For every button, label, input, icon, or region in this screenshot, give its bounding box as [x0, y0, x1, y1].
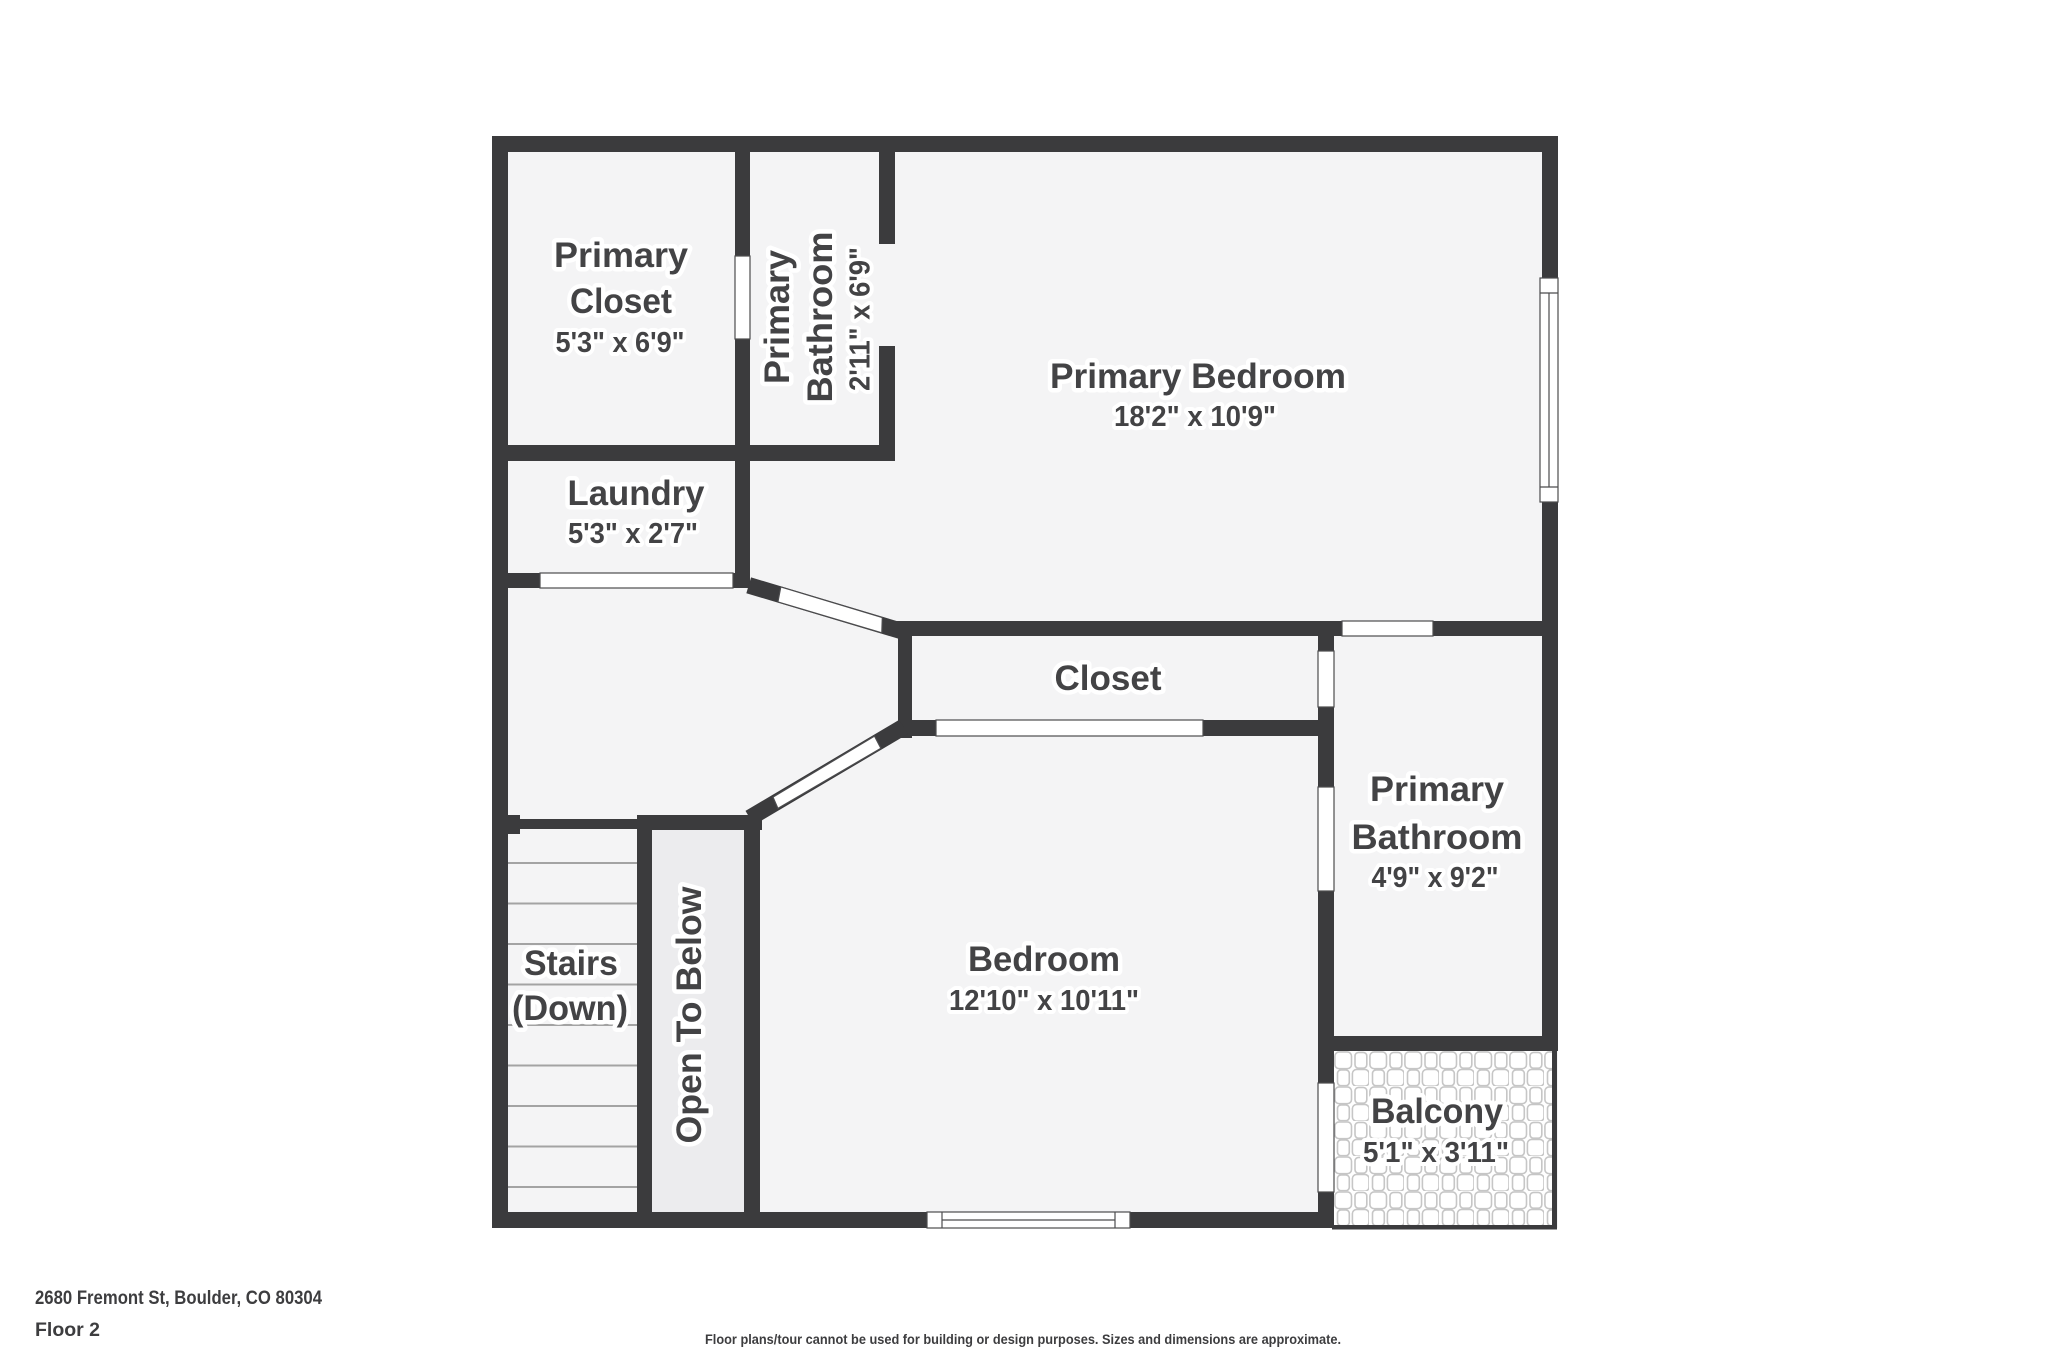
- svg-text:Closet: Closet: [1055, 659, 1162, 698]
- svg-text:5'1" x 3'11": 5'1" x 3'11": [1363, 1137, 1509, 1169]
- svg-text:Primary: Primary: [758, 249, 797, 384]
- svg-text:Open To Below: Open To Below: [670, 886, 709, 1144]
- svg-text:Bedroom: Bedroom: [968, 940, 1120, 979]
- svg-text:2'11" x 6'9": 2'11" x 6'9": [845, 247, 877, 391]
- svg-text:Balcony: Balcony: [1371, 1092, 1504, 1131]
- svg-text:18'2" x 10'9": 18'2" x 10'9": [1114, 401, 1276, 433]
- svg-text:Stairs: Stairs: [524, 944, 618, 983]
- svg-text:(Down): (Down): [512, 989, 628, 1028]
- svg-text:Bathroom: Bathroom: [801, 232, 840, 403]
- svg-text:Floor 2: Floor 2: [35, 1319, 100, 1341]
- svg-text:Laundry: Laundry: [568, 474, 706, 513]
- svg-text:Closet: Closet: [570, 282, 672, 321]
- svg-text:5'3" x 2'7": 5'3" x 2'7": [568, 518, 698, 550]
- svg-text:12'10" x 10'11": 12'10" x 10'11": [949, 985, 1139, 1017]
- svg-text:2680 Fremont St, Boulder, CO 8: 2680 Fremont St, Boulder, CO 80304: [35, 1287, 322, 1309]
- svg-text:Floor plans/tour cannot be use: Floor plans/tour cannot be used for buil…: [705, 1331, 1341, 1347]
- svg-text:5'3" x 6'9": 5'3" x 6'9": [556, 327, 685, 359]
- svg-text:Primary: Primary: [1370, 770, 1505, 809]
- svg-text:Primary Bedroom: Primary Bedroom: [1050, 357, 1346, 396]
- svg-text:Primary: Primary: [554, 236, 689, 275]
- svg-text:4'9" x 9'2": 4'9" x 9'2": [1372, 862, 1499, 894]
- svg-text:Bathroom: Bathroom: [1352, 818, 1523, 857]
